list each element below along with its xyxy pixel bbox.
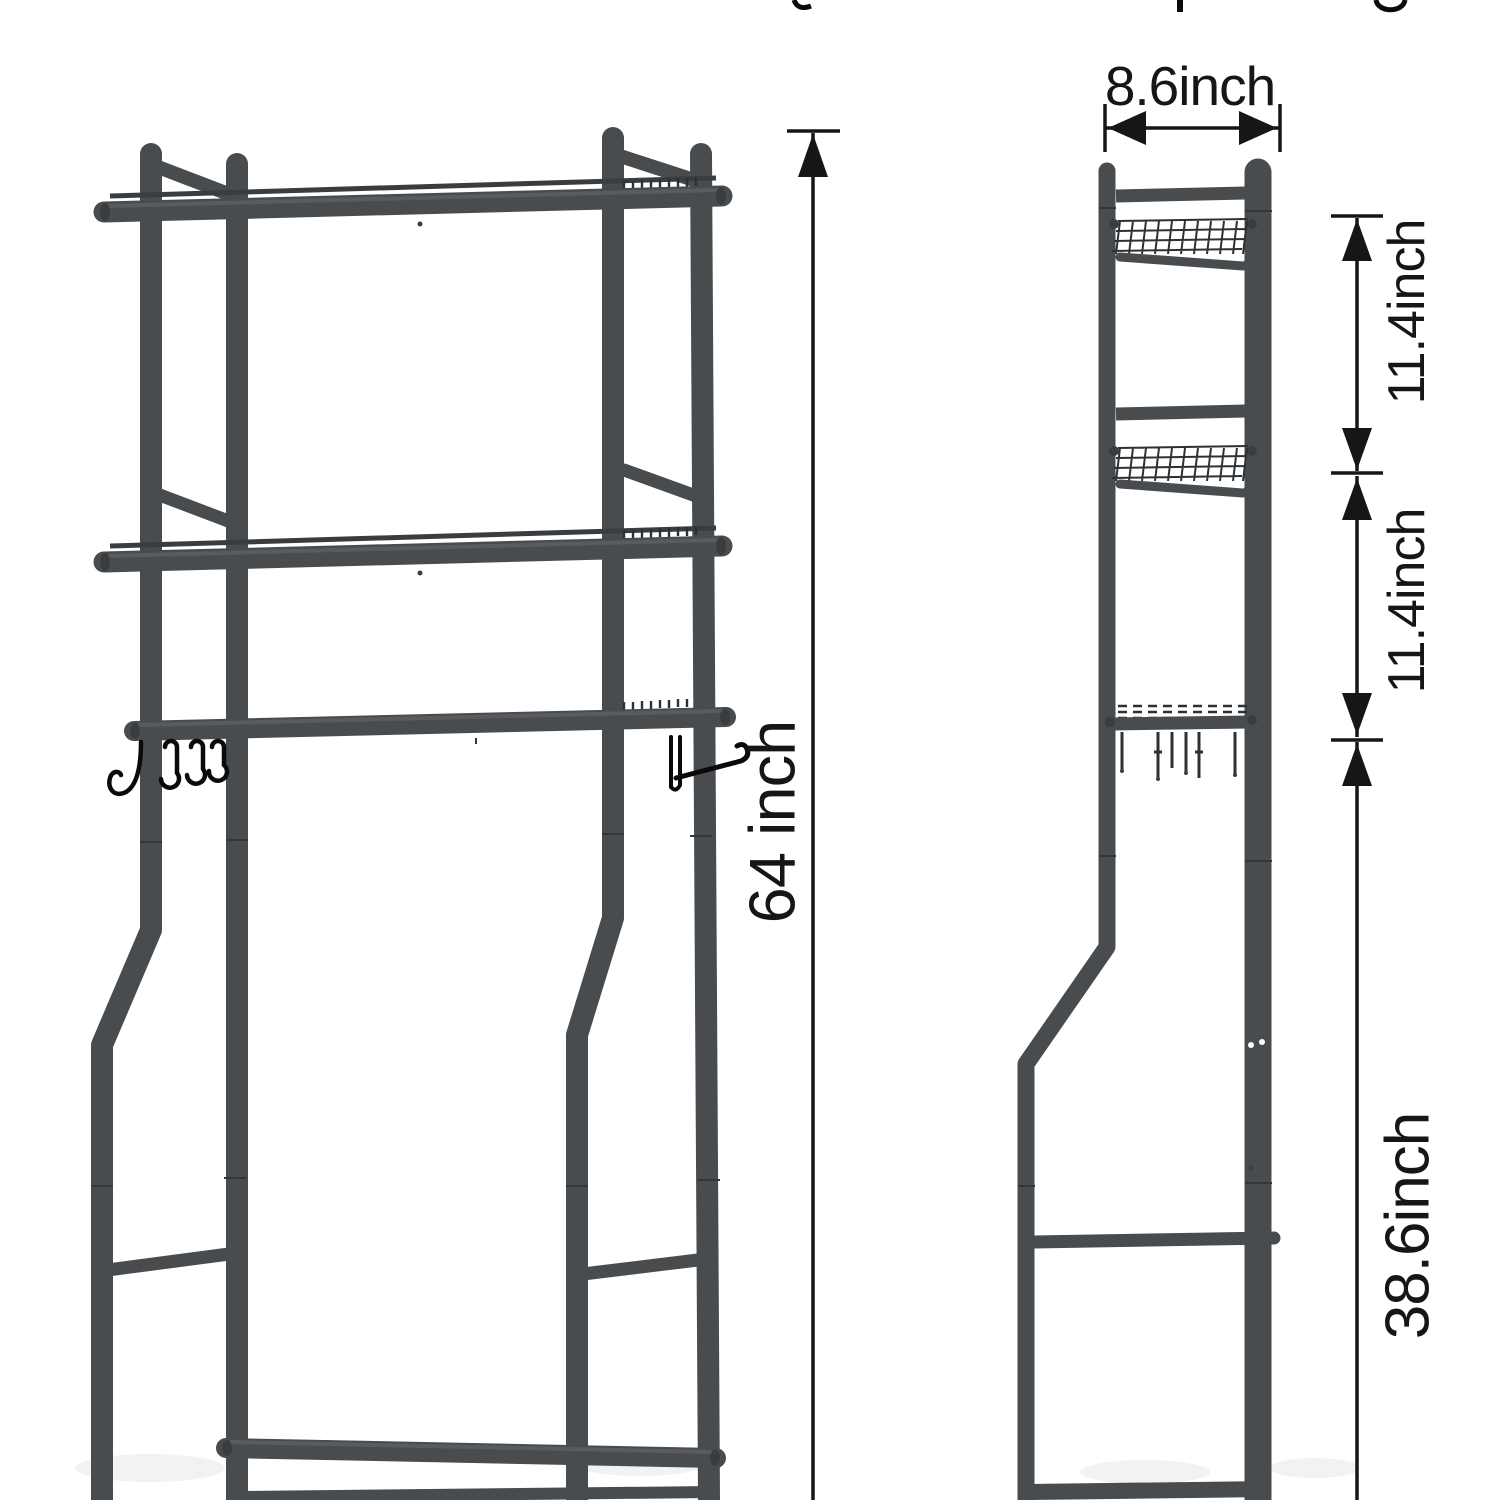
front-view-back-right-post [701, 154, 709, 1500]
screw-hole [1259, 1039, 1265, 1045]
front-view-front-left-post [102, 154, 151, 1500]
dim-top-depth-label: 8.6inch [1105, 55, 1275, 117]
screw-hole [1248, 1042, 1254, 1048]
side-view-hook-rail [1105, 706, 1264, 781]
side-view-basket-middle [1109, 446, 1262, 505]
dim-lower-gap-label: 11.4inch [1378, 509, 1436, 694]
side-view [1018, 171, 1274, 1500]
dim-total-height-label: 64 inch [736, 721, 809, 924]
front-view-hook-rail [130, 699, 730, 744]
side-view-top-rail [1116, 193, 1246, 196]
s-hooks [109, 741, 227, 794]
side-view-front-post [1026, 171, 1107, 1500]
screw-mark [1249, 1166, 1253, 1170]
dim-upper-gap-label: 11.4inch [1378, 220, 1436, 405]
side-view-lower-brace [1034, 1238, 1274, 1242]
front-view-lower-side-braces [108, 1254, 698, 1274]
cropped-top-text-fragments [794, 0, 1405, 12]
side-view-bottom-rail [1028, 1489, 1270, 1492]
dim-total-height: 64 inch [736, 131, 841, 1500]
diagram-canvas: 8.6inch 64 inch 11.4inch 11.4inch 38.6in… [0, 0, 1500, 1500]
dim-right-column: 11.4inch 11.4inch 38.6inch [1331, 216, 1443, 1500]
side-view-joint-seams [1018, 208, 1272, 1186]
side-view-basket-top [1109, 219, 1262, 278]
dim-top-depth: 8.6inch [1105, 55, 1280, 152]
dimension-annotations: 8.6inch 64 inch 11.4inch 11.4inch 38.6in… [736, 55, 1443, 1500]
front-view [91, 138, 748, 1500]
front-view-middle-shelf [100, 526, 726, 576]
front-view-front-right-post [577, 138, 613, 1500]
front-view-joint-seams [91, 834, 720, 1186]
side-view-mid-rail [1116, 411, 1246, 414]
dimension-diagram: 8.6inch 64 inch 11.4inch 11.4inch 38.6in… [0, 0, 1500, 1500]
dim-clearance-label: 38.6inch [1374, 1113, 1443, 1339]
